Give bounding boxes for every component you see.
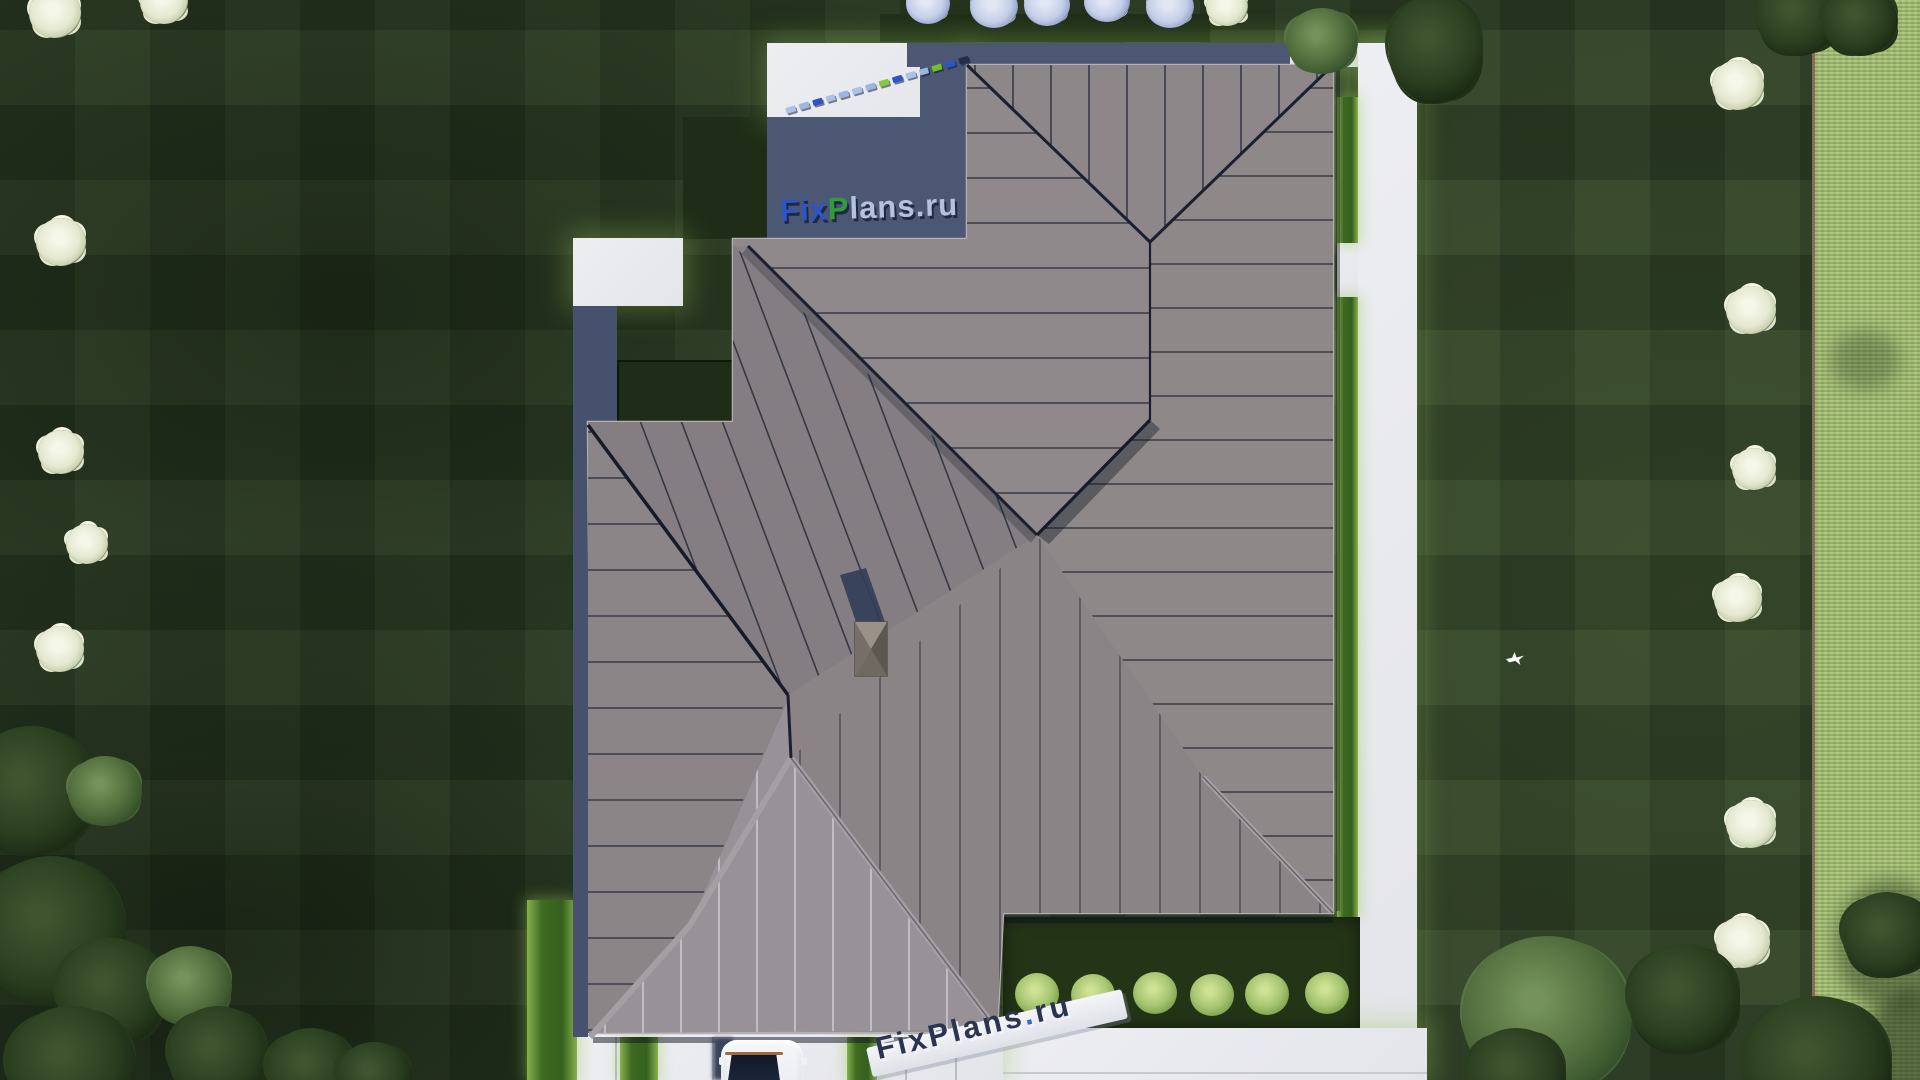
watermark-segment: Fix <box>779 191 828 228</box>
car-mirror <box>801 1057 807 1065</box>
grass-joint-driveway <box>620 1037 658 1080</box>
site-plan-render: FixPlans.ru FixPlans.ru <box>0 0 1920 1080</box>
car-windshield <box>726 1055 782 1080</box>
flowering-tree <box>1732 448 1776 490</box>
flowering-tree <box>1726 286 1776 334</box>
car <box>713 1035 813 1080</box>
watermark-segment: .ru <box>915 187 959 223</box>
flowering-tree <box>66 524 108 564</box>
shadow-top-connector <box>920 67 967 117</box>
flowering-tree <box>38 430 84 474</box>
flowering-tree <box>1712 60 1764 110</box>
green-tree <box>68 756 142 826</box>
path-right-connector <box>1337 243 1358 297</box>
dark-tree <box>1628 944 1740 1054</box>
grass-strip-right-upper <box>1337 97 1358 243</box>
slab-joint <box>615 1037 617 1080</box>
garden-square-top <box>683 117 767 239</box>
grass-strip-right-lower <box>1337 297 1358 917</box>
green-tree <box>1286 8 1358 74</box>
bush <box>1190 974 1234 1016</box>
watermark-segment: lans <box>849 188 916 225</box>
watermark-segment: ru <box>1031 987 1075 1029</box>
shadow-left-strip <box>573 422 588 1037</box>
watermark-fixplans: FixPlans.ru <box>779 187 958 229</box>
flowering-tree <box>1726 800 1776 848</box>
bush <box>1305 972 1349 1014</box>
car-mirror <box>719 1057 725 1065</box>
flowering-tree <box>36 626 84 672</box>
garden-square-left <box>617 360 737 426</box>
car-trim <box>725 1052 783 1055</box>
path-left-landing <box>573 238 683 306</box>
flowering-tree <box>1714 576 1762 622</box>
watermark-segment: P <box>827 191 850 227</box>
slab-joint <box>1003 1072 1427 1074</box>
bush <box>1133 972 1177 1014</box>
grass-strip-left <box>527 900 577 1080</box>
flowering-tree <box>36 218 86 266</box>
bush <box>1245 973 1289 1015</box>
path-right <box>1358 43 1417 1028</box>
shadow-top-band <box>907 43 1290 67</box>
shadow-left-wedge <box>573 306 617 422</box>
tree-shadow <box>1830 330 1900 390</box>
